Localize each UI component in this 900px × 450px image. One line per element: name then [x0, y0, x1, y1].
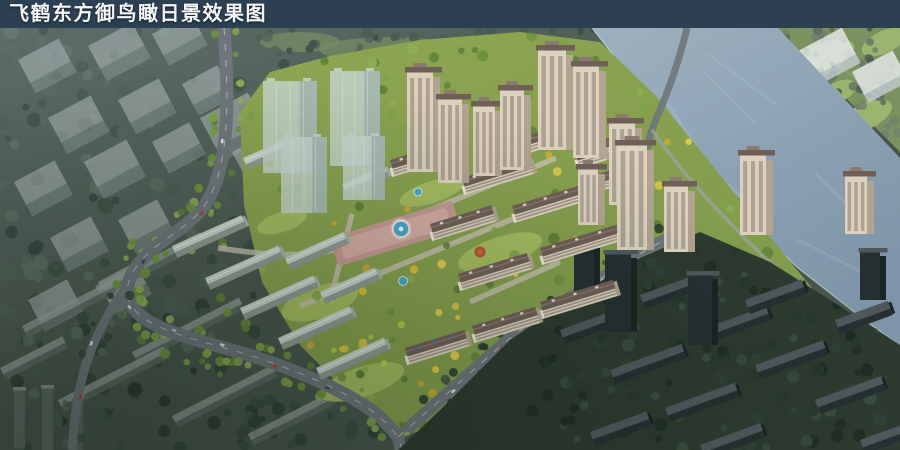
screenshot-stage: 飞鹤东方御鸟瞰日景效果图 — [0, 0, 900, 450]
aerial-rendering — [0, 0, 900, 450]
vignette — [0, 0, 900, 450]
render-title: 飞鹤东方御鸟瞰日景效果图 — [9, 4, 267, 24]
title-bar: 飞鹤东方御鸟瞰日景效果图 — [0, 0, 900, 28]
